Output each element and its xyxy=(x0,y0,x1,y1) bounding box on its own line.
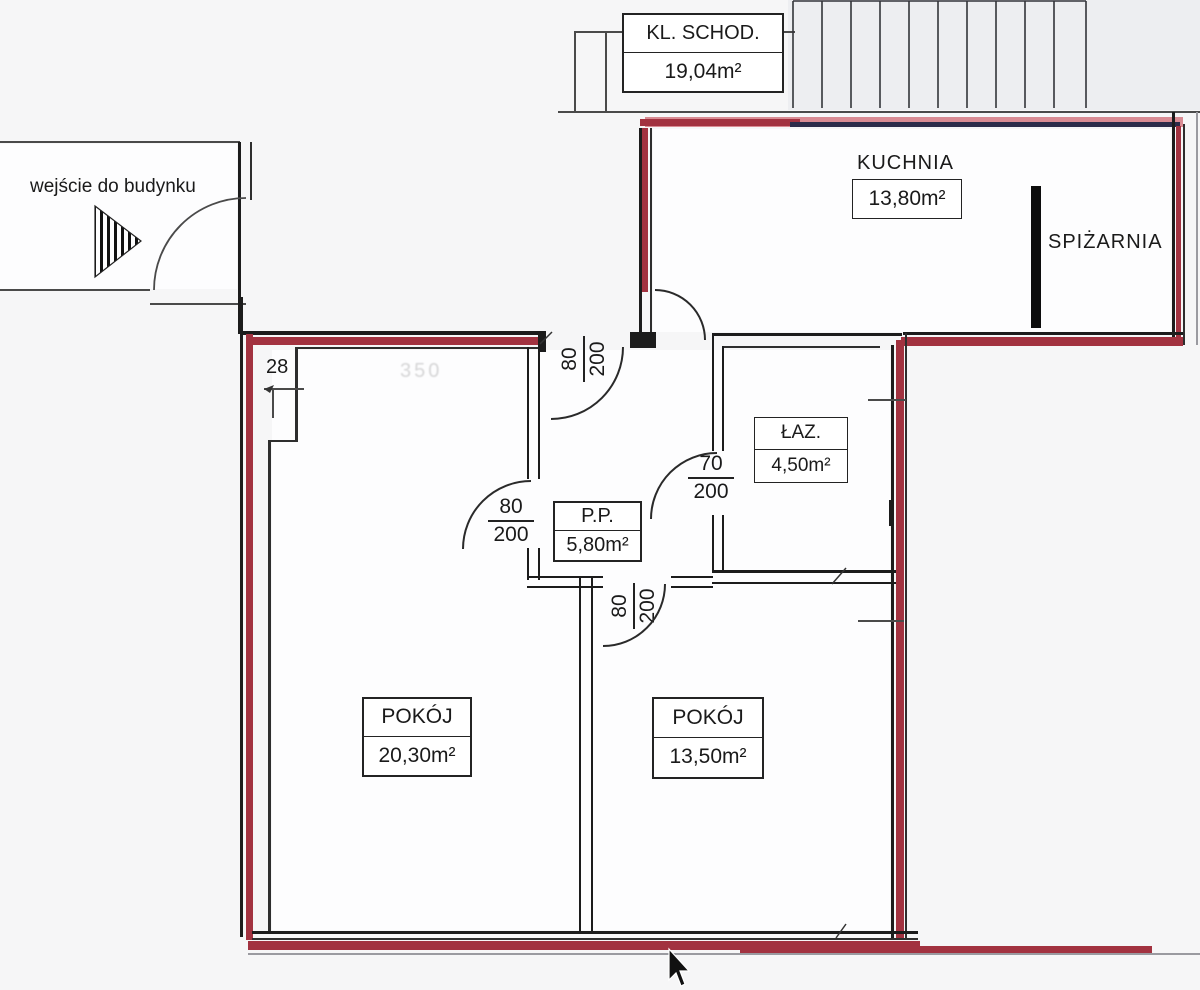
door-height: 200 xyxy=(587,341,609,376)
outer-edge-line xyxy=(1196,112,1198,345)
door-size-bathroom: 70 200 xyxy=(678,443,744,513)
dim-28-line-h xyxy=(264,388,304,390)
fraction-bar xyxy=(488,520,534,522)
kitchen-bottom-wall-red xyxy=(901,337,1183,346)
corridor-right-wall-inner xyxy=(250,142,252,200)
room-left-label-box: POKÓJ 20,30m² xyxy=(362,697,472,777)
staircase-area: 19,04m² xyxy=(624,53,782,91)
pantry-divider-bar xyxy=(1031,186,1041,328)
door-height: 200 xyxy=(693,481,728,503)
east-wall-tick-2 xyxy=(858,620,904,622)
pantry-name: SPIŻARNIA xyxy=(1048,231,1163,254)
corridor-top-wall xyxy=(0,141,240,143)
bathroom-bottom-wall-b xyxy=(712,582,898,584)
door-width: 80 xyxy=(609,594,631,617)
floor-plan: wejście do budynku KL. SCHOD. 19,04m² KU… xyxy=(0,0,1200,990)
bottom-outer-line xyxy=(248,953,1200,955)
kitchen-area: 13,80m² xyxy=(853,180,961,218)
bathroom-area: 4,50m² xyxy=(755,450,847,482)
bathroom-left-wall-b xyxy=(722,346,724,451)
bathroom-top-wall-outer xyxy=(712,333,902,336)
east-wall-stub xyxy=(889,500,894,526)
bathroom-left-wall-c xyxy=(712,515,714,572)
bottom-wall-red-ext xyxy=(740,946,1152,953)
hall-left-wall-a xyxy=(527,347,529,479)
bathroom-left-wall-a xyxy=(712,333,714,451)
kitchen-left-wall-inner xyxy=(650,128,652,334)
room-right-top-wall-a xyxy=(671,576,713,578)
staircase-label-box: KL. SCHOD. 19,04m² xyxy=(622,13,784,93)
bottom-wall-outer xyxy=(252,931,918,934)
room-left-area: 20,30m² xyxy=(364,737,470,775)
room-left-top-wall xyxy=(240,331,546,335)
kitchen-right-wall-outer xyxy=(1172,112,1175,345)
fraction-bar xyxy=(688,477,734,479)
room-left-top-wall-red xyxy=(248,337,540,345)
corridor-bottom-wall xyxy=(0,289,150,291)
east-wall-red xyxy=(896,340,904,940)
staircase-name: KL. SCHOD. xyxy=(624,15,782,53)
door-size-entrance: 80 200 xyxy=(549,326,619,392)
door-width: 70 xyxy=(699,453,722,475)
hall-area: 5,80m² xyxy=(555,531,640,560)
room-left-top-wall-inner xyxy=(295,347,540,349)
door-size-room-left: 80 200 xyxy=(478,486,544,556)
dim-28-label: 28 xyxy=(266,356,288,379)
building-entrance-label: wejście do budynku xyxy=(30,176,196,198)
room-right-area: 13,50m² xyxy=(654,738,762,777)
bathroom-top-wall-inner xyxy=(722,346,880,348)
bathroom-label-box: ŁAZ. 4,50m² xyxy=(754,417,848,483)
landing-bottom-line xyxy=(558,111,1200,113)
landing-left-line xyxy=(574,31,576,112)
door-width: 80 xyxy=(559,347,581,370)
west-wall-pillar-face xyxy=(295,347,298,442)
kitchen-top-wall-dark xyxy=(790,122,1180,127)
west-wall-inner xyxy=(268,440,271,933)
kitchen-door-jamb xyxy=(630,332,656,348)
kitchen-bottom-wall xyxy=(903,332,1183,335)
west-wall-outer xyxy=(240,297,243,937)
room-right-label-box: POKÓJ 13,50m² xyxy=(652,697,764,779)
door-height: 200 xyxy=(493,524,528,546)
room-right-name: POKÓJ xyxy=(654,699,762,738)
faint-dimension: 350 xyxy=(400,360,442,383)
kitchen-name: KUCHNIA xyxy=(857,152,954,175)
room-left-name: POKÓJ xyxy=(364,699,470,737)
east-wall-inner xyxy=(905,333,907,940)
door-width: 80 xyxy=(499,496,522,518)
fraction-bar xyxy=(633,583,635,629)
hall-label-box: P.P. 5,80m² xyxy=(553,501,642,562)
kitchen-top-wall-red xyxy=(640,119,800,126)
bathroom-bottom-wall-a xyxy=(712,570,898,573)
fraction-bar xyxy=(583,336,585,382)
kitchen-right-wall-inner xyxy=(1183,124,1185,345)
room-divider-wall-a xyxy=(579,576,581,933)
room-divider-wall-b xyxy=(591,576,593,933)
building-door-leaf xyxy=(150,303,246,305)
door-size-room-right: 80 200 xyxy=(599,573,669,639)
stairwell-background xyxy=(788,0,1200,110)
east-wall-outer xyxy=(891,345,894,940)
room-right-top-wall-b xyxy=(671,586,713,588)
door-height: 200 xyxy=(637,588,659,623)
kitchen-area-box: 13,80m² xyxy=(852,179,962,219)
bottom-wall-inner xyxy=(252,938,918,940)
hall-left-wall-b xyxy=(538,347,540,479)
west-wall-pillar-step xyxy=(268,440,298,442)
bathroom-name: ŁAZ. xyxy=(755,418,847,450)
corridor-floor xyxy=(0,144,237,289)
kitchen-right-wall-red xyxy=(1176,126,1181,340)
kitchen-left-wall-red xyxy=(642,128,648,292)
west-wall-red xyxy=(246,334,253,940)
east-wall-tick-1 xyxy=(868,399,906,401)
landing-notch-line xyxy=(605,31,607,112)
dim-28-line-v xyxy=(272,388,274,418)
bathroom-left-wall-d xyxy=(722,515,724,572)
hall-name: P.P. xyxy=(555,503,640,531)
